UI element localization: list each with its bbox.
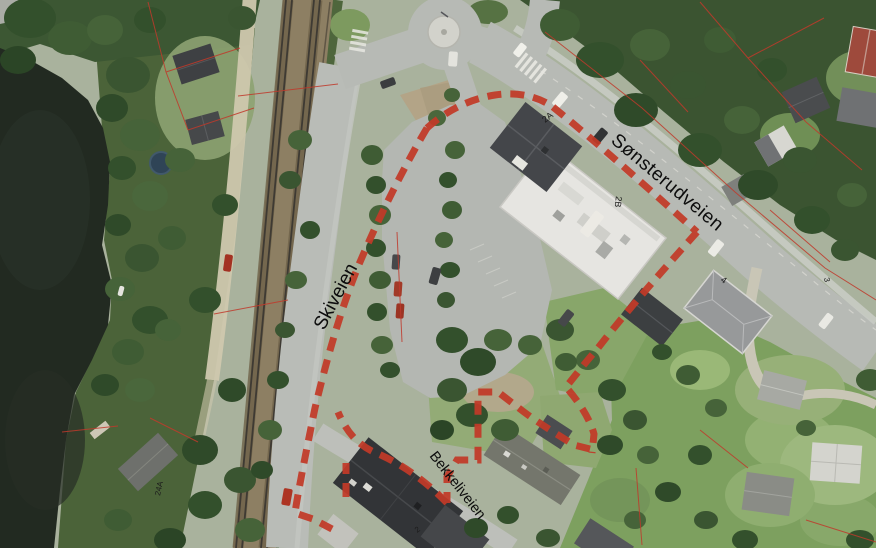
- building-br-3: [742, 472, 795, 516]
- map-canvas: Skiveien Sønsterudveien Bekkeliveien 2A …: [0, 0, 876, 548]
- label-2b: 2B: [613, 196, 624, 208]
- aerial-map: Skiveien Sønsterudveien Bekkeliveien 2A …: [0, 0, 876, 548]
- building-br-2: [810, 442, 863, 483]
